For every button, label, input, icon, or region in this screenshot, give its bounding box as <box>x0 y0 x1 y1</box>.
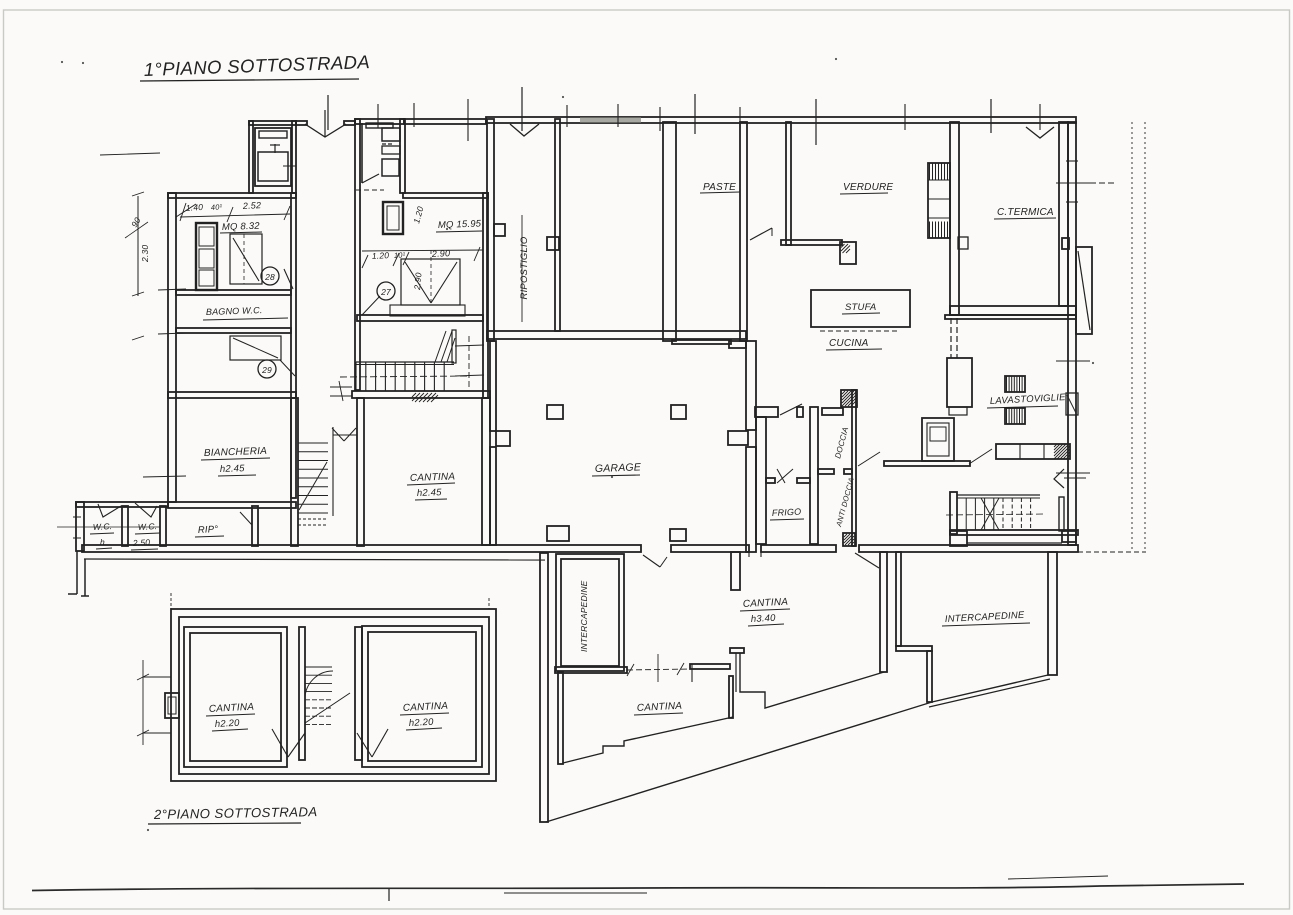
svg-text:h2.45: h2.45 <box>417 487 443 499</box>
svg-text:STUFA: STUFA <box>845 302 876 313</box>
svg-text:1.40: 1.40 <box>185 202 203 213</box>
svg-text:BAGNO W.C.: BAGNO W.C. <box>206 305 263 317</box>
svg-text:VERDURE: VERDURE <box>843 182 893 193</box>
svg-text:27: 27 <box>380 287 391 297</box>
svg-text:MQ 15.95: MQ 15.95 <box>438 218 482 231</box>
svg-text:h2.20: h2.20 <box>215 718 241 730</box>
svg-text:h2.45: h2.45 <box>220 463 246 475</box>
svg-text:INTERCAPEDINE: INTERCAPEDINE <box>579 580 589 652</box>
svg-text:CANTINA: CANTINA <box>410 471 456 484</box>
svg-text:MQ 8.32: MQ 8.32 <box>222 221 261 233</box>
svg-text:RIPOSTIGLIO: RIPOSTIGLIO <box>519 236 530 299</box>
svg-text:PASTE: PASTE <box>703 182 736 193</box>
svg-text:h2.20: h2.20 <box>409 717 435 729</box>
svg-text:h3.40: h3.40 <box>751 613 777 625</box>
svg-text:BIANCHERIA: BIANCHERIA <box>204 446 268 459</box>
svg-text:W.C.: W.C. <box>138 521 158 532</box>
svg-text:FRIGO: FRIGO <box>772 506 802 518</box>
svg-text:2°PIANO SOTTOSTRADA: 2°PIANO SOTTOSTRADA <box>153 804 318 822</box>
svg-text:1.20: 1.20 <box>372 250 390 261</box>
svg-text:2.52: 2.52 <box>242 200 262 211</box>
svg-text:W.C.: W.C. <box>93 521 113 532</box>
svg-text:GARAGE: GARAGE <box>595 461 642 475</box>
svg-text:2.90: 2.90 <box>431 248 451 259</box>
svg-text:2.50: 2.50 <box>132 537 151 548</box>
svg-text:40¹: 40¹ <box>211 202 223 212</box>
svg-text:2.30: 2.30 <box>140 245 150 263</box>
svg-text:RIP°: RIP° <box>198 524 219 536</box>
svg-text:29: 29 <box>261 365 272 375</box>
svg-text:CUCINA: CUCINA <box>829 338 869 349</box>
svg-text:28: 28 <box>264 272 275 282</box>
svg-text:C.TERMICA: C.TERMICA <box>997 207 1054 218</box>
